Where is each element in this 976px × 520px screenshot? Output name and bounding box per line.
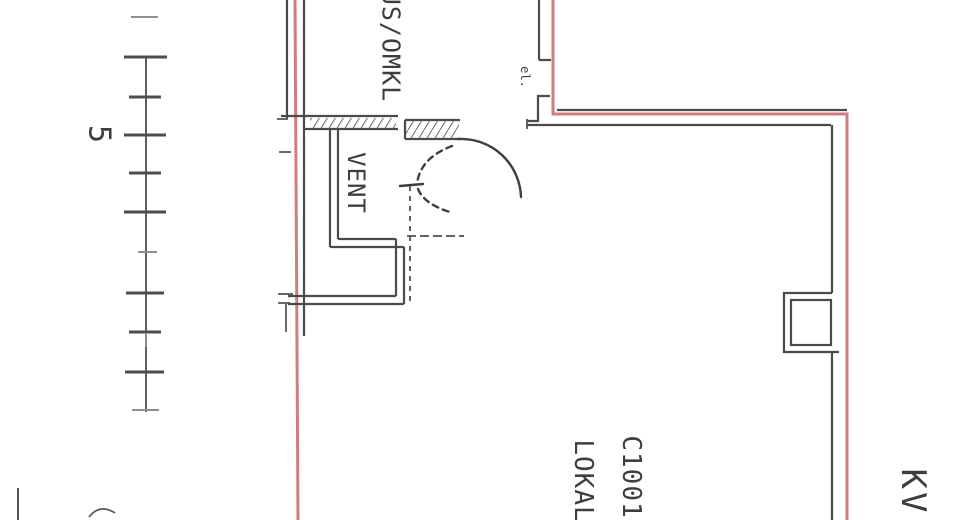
floor-plan-scan: 5 (0, 0, 976, 520)
red-markup-line-left (295, 0, 298, 520)
wall-hatch-fill (406, 121, 459, 138)
shaft-inner-wall (791, 300, 831, 345)
us-omkl-right-wall (527, 0, 551, 129)
floor-plan-drawing: 5 (0, 0, 976, 520)
block-label-kv: KV (893, 469, 933, 516)
room-label-lokal: LOKAL (568, 439, 598, 520)
left-exterior-wall (277, 0, 304, 336)
door-swing-arc (458, 139, 521, 197)
room-id-c1001: C1001 (616, 435, 646, 518)
door-swings (400, 139, 521, 212)
room-label-us-omkl: US/OMKL (377, 0, 406, 102)
dashed-overhead-lines (407, 186, 464, 305)
scale-number-label: 5 (82, 125, 117, 143)
top-interior-wall (281, 116, 460, 139)
room-labels: US/OMKL VENT el. C1001 LOKAL KV (342, 0, 933, 520)
scale-bar: 5 (82, 17, 168, 412)
scan-marks (18, 488, 115, 520)
wall-hatch-fill (310, 118, 396, 128)
door-leaf (400, 184, 423, 186)
door-swing-arc-dashed (418, 189, 450, 212)
door-swing-arc-dashed (417, 146, 452, 184)
el-niche-wall (527, 96, 550, 121)
pen-mark (89, 509, 115, 517)
el-label: el. (518, 66, 532, 88)
wall-shaft-box (784, 293, 839, 352)
room-label-vent: VENT (342, 152, 370, 214)
